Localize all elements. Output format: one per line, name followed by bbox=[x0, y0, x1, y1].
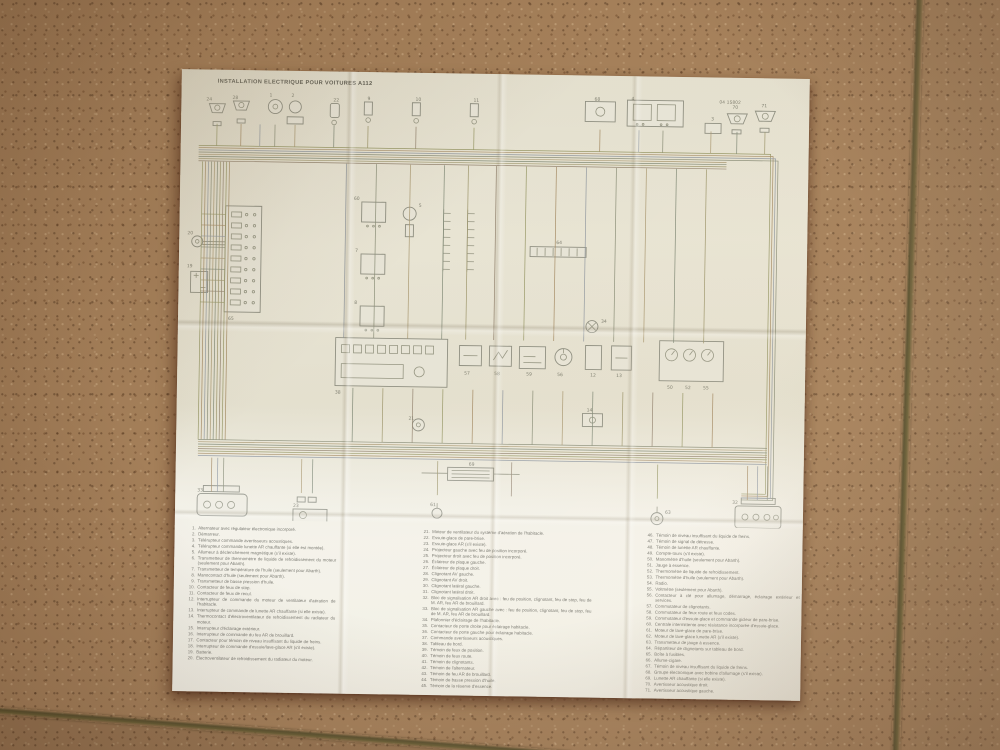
legend-column-1: 1.Alternateur avec régulateur électroniq… bbox=[183, 525, 337, 663]
svg-text:68: 68 bbox=[594, 97, 600, 103]
svg-text:23: 23 bbox=[293, 503, 299, 509]
svg-text:14: 14 bbox=[587, 408, 593, 414]
diagram-title: INSTALLATION ELECTRIQUE POUR VOITURES A1… bbox=[218, 79, 373, 87]
svg-text:52: 52 bbox=[685, 385, 691, 391]
svg-text:20: 20 bbox=[187, 230, 193, 236]
svg-text:59: 59 bbox=[526, 372, 532, 378]
svg-text:4: 4 bbox=[631, 96, 634, 102]
wiring-diagram-svg: 2428122291011684370712019656078564343857… bbox=[181, 89, 802, 529]
svg-text:71: 71 bbox=[761, 103, 767, 109]
legend-column-2: 21.Moteur de ventilateur du système d'aé… bbox=[416, 529, 592, 692]
battery-icon bbox=[190, 271, 207, 292]
top-sender-icons bbox=[330, 101, 478, 127]
svg-text:28: 28 bbox=[232, 95, 238, 101]
tile-grout-horizontal bbox=[0, 706, 572, 750]
rear-lamp-right-icon bbox=[735, 498, 781, 529]
svg-text:50: 50 bbox=[667, 385, 673, 391]
tile-grout-vertical bbox=[891, 0, 924, 750]
legend-item: 71.Avertisseur acoustique gauche. bbox=[640, 687, 798, 695]
svg-text:8: 8 bbox=[354, 300, 357, 306]
photo-of-wiring-diagram: INSTALLATION ELECTRIQUE POUR VOITURES A1… bbox=[0, 0, 1000, 750]
svg-text:38: 38 bbox=[335, 390, 341, 396]
svg-text:10: 10 bbox=[415, 97, 421, 103]
legend-column-3: 46.Témoin de niveau insuffisant du liqui… bbox=[640, 532, 801, 695]
svg-text:55: 55 bbox=[703, 385, 709, 391]
svg-text:70: 70 bbox=[732, 105, 738, 111]
legend-item: 20.Électroventilateur de refroidissement… bbox=[183, 655, 335, 663]
instrument-cluster-icon bbox=[335, 338, 448, 388]
svg-text:12: 12 bbox=[590, 373, 596, 379]
horn-icons bbox=[727, 111, 775, 135]
svg-text:3: 3 bbox=[711, 116, 714, 122]
switch-row-icons bbox=[459, 344, 631, 371]
svg-text:65: 65 bbox=[228, 316, 234, 322]
relay-icons bbox=[360, 202, 386, 331]
svg-text:63: 63 bbox=[665, 510, 671, 516]
svg-text:61: 61 bbox=[430, 502, 436, 508]
svg-text:7: 7 bbox=[355, 248, 358, 254]
svg-text:64: 64 bbox=[556, 240, 562, 246]
connector-combs bbox=[443, 209, 475, 271]
svg-text:56: 56 bbox=[557, 372, 563, 378]
svg-text:9: 9 bbox=[367, 96, 370, 102]
fuse-box-icon bbox=[224, 206, 262, 313]
svg-text:32: 32 bbox=[732, 500, 738, 506]
svg-text:19: 19 bbox=[187, 263, 193, 269]
headlamp-left-icon bbox=[209, 101, 249, 127]
alternator-starter-icon bbox=[268, 99, 303, 124]
wire-harness-lines bbox=[193, 123, 778, 500]
svg-text:2: 2 bbox=[291, 93, 294, 99]
rear-lamp-left-icon bbox=[197, 485, 247, 516]
electronic-unit-icon bbox=[585, 99, 721, 133]
paper-sheet: INSTALLATION ELECTRIQUE POUR VOITURES A1… bbox=[172, 69, 810, 701]
svg-text:24: 24 bbox=[206, 96, 212, 102]
svg-text:33: 33 bbox=[197, 487, 203, 493]
flasher-unit-icon bbox=[530, 247, 586, 258]
svg-text:58: 58 bbox=[494, 371, 500, 377]
svg-text:57: 57 bbox=[464, 371, 470, 377]
svg-text:34: 34 bbox=[601, 319, 607, 325]
gauge-box-icon bbox=[659, 341, 724, 382]
heated-rear-window-icon bbox=[422, 467, 520, 482]
fan-motor-icon bbox=[192, 236, 226, 248]
svg-text:22: 22 bbox=[333, 97, 339, 103]
svg-text:69: 69 bbox=[469, 462, 475, 468]
svg-text:5: 5 bbox=[419, 203, 422, 209]
svg-text:11: 11 bbox=[473, 98, 479, 104]
svg-text:21: 21 bbox=[408, 416, 414, 422]
svg-text:1: 1 bbox=[269, 92, 272, 98]
rear-wiper-icon bbox=[293, 497, 327, 523]
tile-right bbox=[910, 0, 1000, 750]
svg-text:60: 60 bbox=[354, 196, 360, 202]
svg-text:13: 13 bbox=[616, 373, 622, 379]
dome-lamp-icon bbox=[586, 320, 598, 332]
fuel-sender-icon bbox=[651, 507, 663, 525]
